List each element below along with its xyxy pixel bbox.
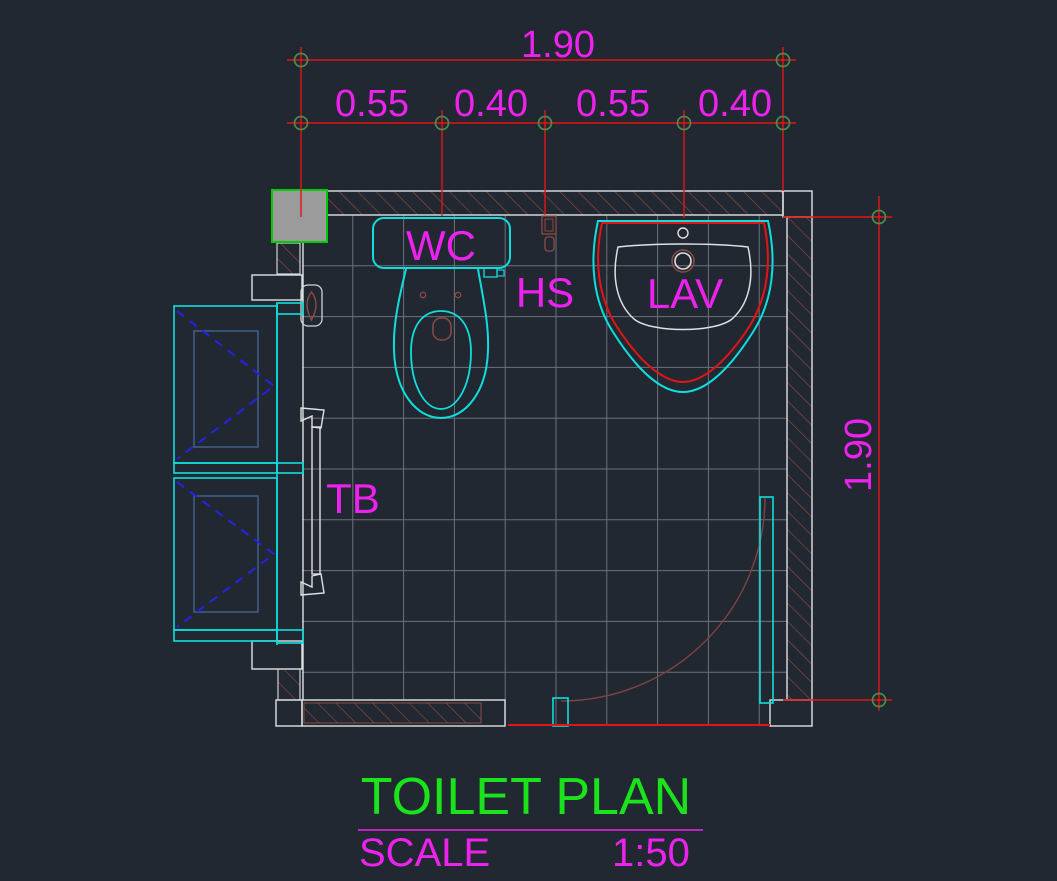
dim-seg3-text[interactable]: 0.55	[576, 83, 650, 125]
cad-canvas: TB WC HS LAV	[0, 0, 1057, 881]
wc-label[interactable]: WC	[406, 222, 476, 269]
left-wall-pier-lower[interactable]	[278, 669, 300, 700]
dim-right-total-text[interactable]: 1.90	[838, 418, 880, 492]
scale-value[interactable]: 1:50	[612, 831, 690, 875]
top-wall[interactable]	[327, 191, 783, 215]
hs-label[interactable]: HS	[516, 269, 574, 316]
toilet-plan-drawing: TB WC HS LAV	[0, 0, 1057, 881]
towel-bar-label[interactable]: TB	[326, 475, 380, 522]
dim-top-total-text[interactable]: 1.90	[521, 24, 595, 66]
lav-label[interactable]: LAV	[647, 270, 723, 317]
dim-seg4-text[interactable]: 0.40	[698, 83, 772, 125]
dim-seg1-text[interactable]: 0.55	[335, 83, 409, 125]
left-wall-pier-upper[interactable]	[277, 243, 300, 274]
dim-seg2-text[interactable]: 0.40	[454, 83, 528, 125]
right-wall[interactable]	[787, 217, 812, 700]
column[interactable]	[272, 190, 327, 242]
drawing-title[interactable]: TOILET PLAN	[361, 768, 691, 826]
scale-label[interactable]: SCALE	[359, 831, 490, 875]
bottom-wall-hatch	[304, 703, 481, 723]
drawing-background	[0, 0, 1057, 881]
